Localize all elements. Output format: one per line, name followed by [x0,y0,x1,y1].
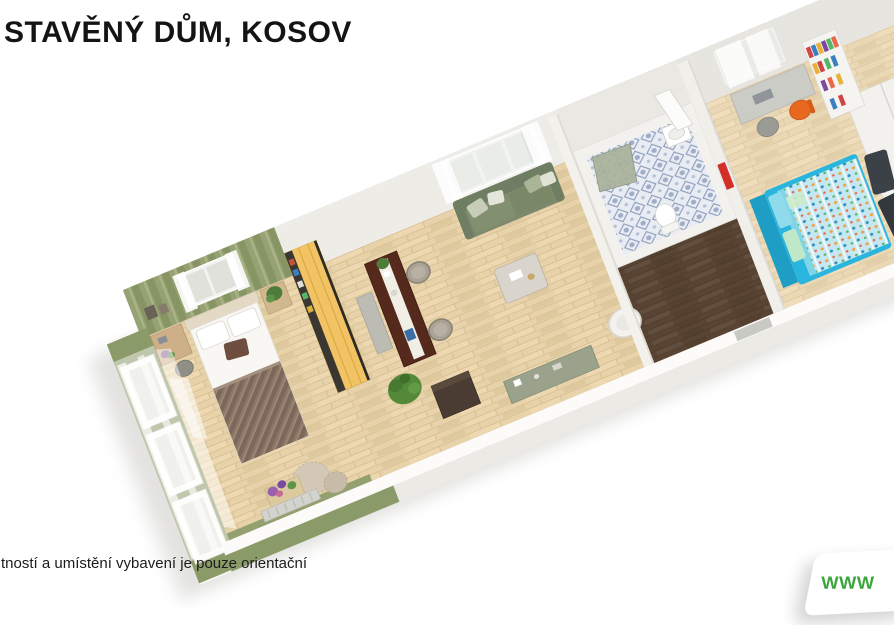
floorplan-render [0,0,894,625]
watermark-badge-text: WWW [821,572,874,593]
watermark-badge: WWW [803,548,894,616]
building [89,0,894,585]
page: STAVĚNÝ DŮM, KOSOV [0,0,894,625]
disclaimer-text: tností a umístění vybavení je pouze orie… [1,555,307,572]
